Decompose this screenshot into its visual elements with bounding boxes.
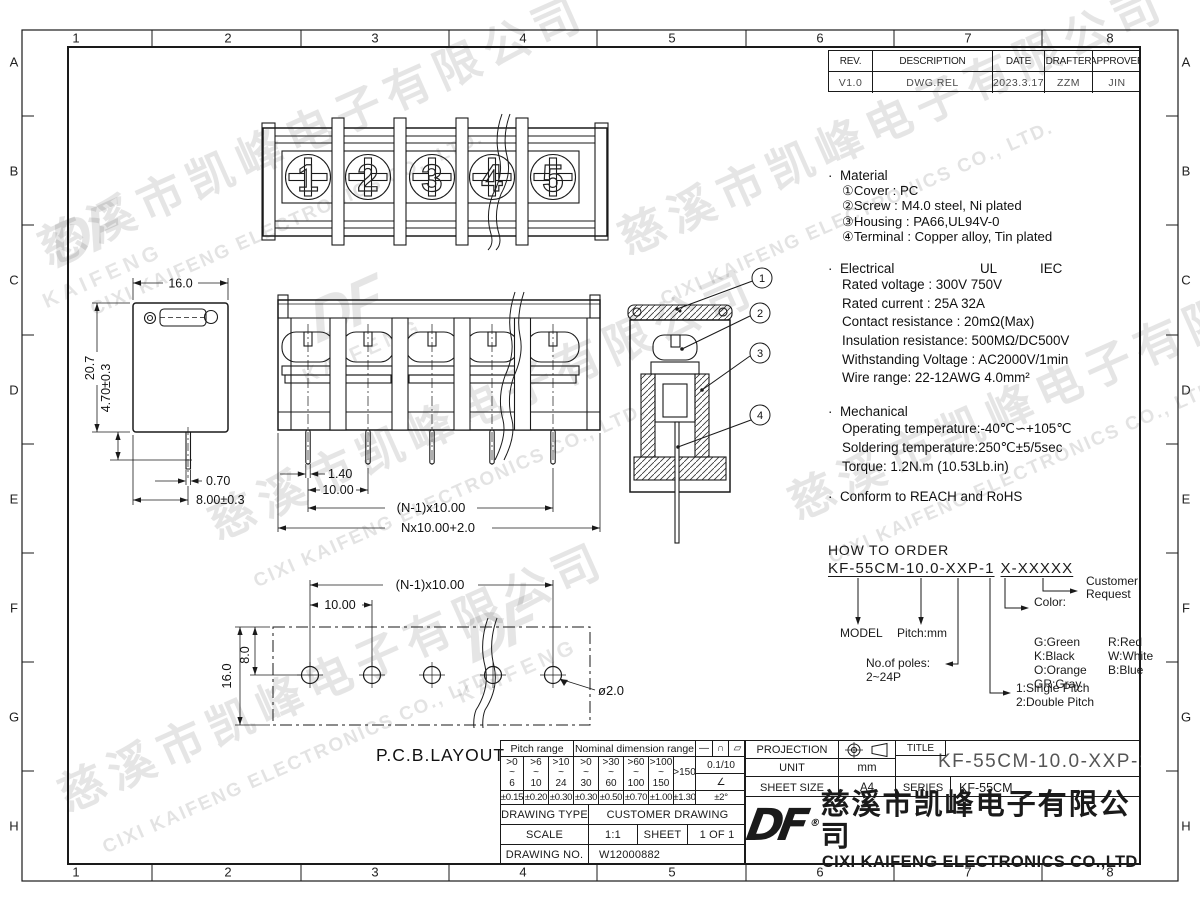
first-angle-projection-icon (842, 742, 892, 758)
grid-row-label: C (9, 273, 18, 288)
grid-col-label: 5 (668, 865, 675, 880)
mechanical-title: ·Mechanical (828, 404, 1160, 419)
dim-20-7: 20.7 (83, 356, 97, 380)
tolerance-cell: ±0.15 (501, 791, 524, 805)
grid-col-label: 3 (371, 865, 378, 880)
order-color-option: G:Green (1034, 635, 1080, 649)
scale-value: 1:1 (589, 825, 638, 845)
grid-col-label: 5 (668, 31, 675, 46)
tolerance-cell: ±0.30 (574, 791, 599, 805)
straightness-symbol: — (696, 741, 713, 757)
pole-number: 2 (357, 158, 378, 200)
side-view: 16.0 20.7 4.70±0.3 0.70 8.00±0.3 (83, 277, 245, 508)
electrical-item: Wire range: 22-12AWG 4.0mm² (842, 369, 1160, 388)
conform-note: ·Conform to REACH and RoHS (828, 489, 1160, 504)
order-code-main: KF-55CM-10.0-XXP-1 (828, 560, 995, 577)
tolerance-cell: ±1.00 (649, 791, 674, 805)
bullet: · (828, 261, 840, 276)
grid-row-label: G (1181, 710, 1191, 725)
grid-row-label: D (1181, 383, 1190, 398)
grid-row-label: F (1182, 601, 1190, 616)
projection-symbol (839, 741, 896, 759)
order-model-label: MODEL (840, 626, 883, 640)
electrical-title: ·ElectricalULIEC (828, 261, 1160, 276)
sheet-label: SHEET (638, 825, 688, 845)
tolerance-cell: ±0.70 (624, 791, 649, 805)
grid-col-label: 6 (816, 31, 823, 46)
dim-4-70: 4.70±0.3 (99, 364, 113, 413)
electrical-item: Rated voltage : 300V 750V (842, 276, 1160, 295)
front-view: 1.40 10.00 (N-1)x10.00 Nx10.00+2.0 (278, 292, 600, 535)
grid-row-label: B (10, 164, 19, 179)
grid-row-label: A (10, 55, 19, 70)
callout-4: 4 (757, 410, 763, 422)
pole-number: 4 (481, 158, 502, 200)
order-color-option: R:Red (1108, 635, 1142, 649)
sheet-value: 1 OF 1 (688, 825, 746, 845)
grid-col-label: 8 (1106, 31, 1113, 46)
pcb-dim-16: 16.0 (219, 663, 234, 688)
mechanical-item: Soldering temperature:250℃±5/5sec (842, 438, 1160, 457)
grid-col-label: 4 (519, 865, 526, 880)
pcb-dim-8: 8.0 (238, 646, 252, 663)
unit-value: mm (839, 759, 896, 777)
order-customer-label-2: Request (1086, 587, 1131, 601)
mechanical-list: Operating temperature:-40℃∽+105℃ Solderi… (828, 419, 1160, 476)
drawing-type-value: CUSTOMER DRAWING (589, 805, 746, 825)
material-list: ①Cover : PC ②Screw : M4.0 steel, Ni plat… (828, 183, 1160, 244)
section-view: 1 2 3 4 (628, 268, 772, 543)
material-item: ④Terminal : Copper alloy, Tin plated (842, 229, 1160, 244)
pcb-dim-10: 10.00 (324, 598, 355, 612)
title-label: TITLE (896, 741, 946, 756)
ul-column-header: UL (980, 261, 997, 276)
dim-0-70: 0.70 (206, 474, 230, 488)
grid-col-label: 3 (371, 31, 378, 46)
tolerance-cell: ±1.30 (674, 791, 696, 805)
company-banner: DF® 慈溪市凯峰电子有限公司 CIXI KAIFENG ELECTRONICS… (745, 797, 1140, 864)
bullet: · (828, 489, 840, 504)
pcb-layout-label: P.C.B.LAYOUT (376, 745, 505, 765)
grid-col-label: 4 (519, 31, 526, 46)
grid-row-label: G (9, 710, 19, 725)
callout-2: 2 (757, 308, 763, 320)
range-cell: >10 ~ 24 (549, 757, 574, 791)
dim-10-00: 10.00 (322, 483, 353, 497)
revision-header: DATE (993, 51, 1045, 72)
angle-tolerance-cell: ±2° (696, 791, 746, 805)
revision-value: JIN (1093, 72, 1141, 93)
grid-row-label: E (1182, 492, 1191, 507)
grid-col-label: 7 (964, 31, 971, 46)
scale-label: SCALE (501, 825, 589, 845)
electrical-item: Withstanding Voltage : AC2000V/1min (842, 351, 1160, 370)
flatness-tolerance: 0.1/10 (696, 757, 746, 774)
company-name-cn: 慈溪市凯峰电子有限公司 (821, 789, 1139, 853)
mechanical-item: Operating temperature:-40℃∽+105℃ (842, 419, 1160, 438)
range-cell: >30 ~ 60 (599, 757, 624, 791)
grid-row-label: H (9, 819, 18, 834)
order-pitch-type-2: 2:Double Pitch (1016, 695, 1094, 709)
electrical-list: Rated voltage : 300V 750V Rated current … (828, 276, 1160, 388)
pole-number: 1 (297, 158, 318, 200)
grid-col-label: 1 (72, 31, 79, 46)
projection-label: PROJECTION (746, 741, 839, 759)
flatness-symbol: ▱ (729, 741, 746, 757)
electrical-item: Rated current : 25A 32A (842, 295, 1160, 314)
order-color-option: K:Black (1034, 649, 1075, 663)
revision-value: V1.0 (829, 72, 873, 93)
electrical-item: Insulation resistance: 500MΩ/DC500V (842, 332, 1160, 351)
order-color-option: O:Orange (1034, 663, 1087, 677)
electrical-item: Contact resistance : 20mΩ(Max) (842, 313, 1160, 332)
order-color-option: B:Blue (1108, 663, 1143, 677)
tolerance-table: Pitch range Nominal dimension range — ∩ … (500, 740, 745, 864)
order-color-label: Color: (1034, 595, 1066, 609)
grid-row-label: H (1181, 819, 1190, 834)
order-code-suffix: X-XXXXX (1001, 560, 1074, 577)
material-item: ③Housing : PA66,UL94V-0 (842, 214, 1160, 229)
drawing-no-label: DRAWING NO. (501, 845, 589, 865)
grid-col-label: 2 (224, 31, 231, 46)
grid-row-label: B (1182, 164, 1191, 179)
grid-row-label: C (1181, 273, 1190, 288)
range-cell: >0 ~ 6 (501, 757, 524, 791)
grid-row-label: A (1182, 55, 1191, 70)
callout-1: 1 (759, 273, 765, 285)
grid-col-label: 1 (72, 865, 79, 880)
dim-nx10-2: Nx10.00+2.0 (401, 520, 475, 535)
range-cell: >0 ~ 30 (574, 757, 599, 791)
drawing-no-value: W12000882 (589, 845, 746, 865)
order-customer-label-1: Customer (1086, 574, 1138, 588)
company-name-en: CIXI KAIFENG ELECTRONICS CO.,LTD (822, 853, 1138, 872)
pcb-dim-n1x10: (N-1)x10.00 (396, 577, 465, 592)
revision-value: ZZM (1045, 72, 1093, 93)
unit-label: UNIT (746, 759, 839, 777)
dim-1-40: 1.40 (328, 467, 352, 481)
mechanical-item: Torque: 1.2N.m (10.53Lb.in) (842, 457, 1160, 476)
iec-column-header: IEC (1040, 261, 1062, 276)
order-poles-label: No.of poles: (866, 656, 930, 670)
revision-value: 2023.3.17 (993, 72, 1045, 93)
grid-row-label: E (10, 492, 19, 507)
order-color-option: W:White (1108, 649, 1153, 663)
pcb-layout: (N-1)x10.00 10.00 16.0 8.0 ø2.0 P.C.B.LA… (219, 577, 624, 765)
grid-row-label: F (10, 601, 18, 616)
company-names: 慈溪市凯峰电子有限公司 CIXI KAIFENG ELECTRONICS CO.… (821, 789, 1139, 872)
grid-row-label: D (9, 383, 18, 398)
tolerance-cell: ±0.20 (524, 791, 549, 805)
tolerance-cell: ±0.30 (549, 791, 574, 805)
revision-header: REV. (829, 51, 873, 72)
revision-value: DWG.REL (873, 72, 993, 93)
order-color-option: GR:Gray (1034, 677, 1081, 691)
how-to-order: HOW TO ORDER KF-55CM-10.0-XXP-1X-XXXXX M… (826, 540, 1166, 720)
nominal-range-header: Nominal dimension range (574, 741, 696, 757)
angle-symbol: ∠ (696, 774, 746, 791)
range-cell: >60 ~ 100 (624, 757, 649, 791)
pole-number: 3 (421, 158, 442, 200)
bullet: · (828, 168, 840, 183)
order-code: KF-55CM-10.0-XXP-1X-XXXXX (828, 560, 1073, 577)
order-poles-value: 2~24P (866, 670, 901, 684)
grid-col-label: 2 (224, 865, 231, 880)
drawing-type-label: DRAWING TYPE (501, 805, 589, 825)
arc-symbol: ∩ (713, 741, 729, 757)
top-view: 1 2 3 4 5 (262, 114, 608, 250)
revision-table: REV. DESCRIPTION DATE DRAFTER APPROVER V… (828, 50, 1140, 92)
spec-notes: ·Material ①Cover : PC ②Screw : M4.0 stee… (828, 168, 1160, 504)
registered-mark: ® (809, 818, 821, 829)
dim-16: 16.0 (168, 277, 192, 291)
pcb-dim-hole: ø2.0 (598, 683, 624, 698)
revision-header: DESCRIPTION (873, 51, 993, 72)
material-item: ②Screw : M4.0 steel, Ni plated (842, 198, 1160, 213)
dim-n1x10: (N-1)x10.00 (397, 500, 466, 515)
pitch-range-header: Pitch range (501, 741, 574, 757)
bullet: · (828, 404, 840, 419)
range-cell: >150 (674, 757, 696, 791)
engineering-drawing-sheet: 慈溪市凯峰电子有限公司 CIXI KAIFENG ELECTRONICS CO.… (0, 0, 1200, 910)
range-cell: >6 ~ 10 (524, 757, 549, 791)
order-title: HOW TO ORDER (828, 542, 949, 558)
order-pitch-label: Pitch:mm (897, 626, 947, 640)
company-logo: DF® (741, 806, 817, 858)
revision-header: APPROVER (1093, 51, 1141, 72)
pole-number: 5 (542, 158, 563, 200)
material-title: ·Material (828, 168, 1160, 183)
range-cell: >100 ~ 150 (649, 757, 674, 791)
dim-8-00: 8.00±0.3 (196, 493, 245, 507)
title-value: KF-55CM-10.0-XXP-1X (938, 751, 1141, 773)
material-item: ①Cover : PC (842, 183, 1160, 198)
tolerance-cell: ±0.50 (599, 791, 624, 805)
callout-3: 3 (757, 348, 763, 360)
revision-header: DRAFTER (1045, 51, 1093, 72)
